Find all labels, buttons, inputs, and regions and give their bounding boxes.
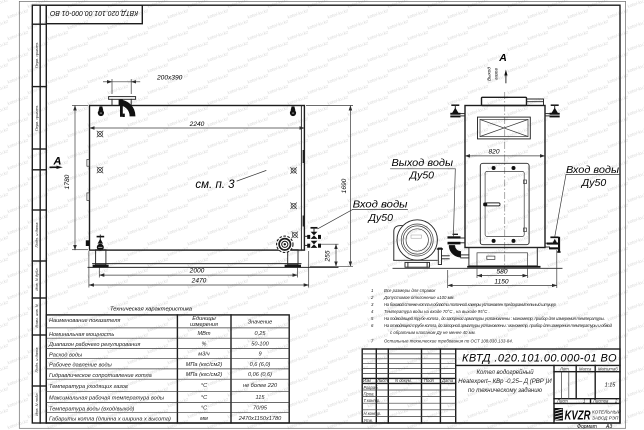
svg-text:Температура уходящих газов: Температура уходящих газов [49, 384, 128, 390]
svg-text:Пров.: Пров. [364, 391, 375, 396]
svg-text:115: 115 [256, 395, 266, 401]
svg-text:1:15: 1:15 [605, 383, 617, 389]
svg-text:200х390: 200х390 [156, 75, 183, 82]
svg-text:с обратным клапаном Ду не мен: с обратным клапаном Ду не менее 40 мм. [390, 330, 476, 335]
svg-text:Максимальная рабочая температу: Максимальная рабочая температура воды [49, 396, 164, 402]
svg-text:не более 220: не более 220 [243, 383, 278, 389]
svg-text:см. п. 3: см. п. 3 [195, 179, 235, 191]
svg-text:N докум.: N докум. [395, 378, 412, 383]
svg-text:Диапазон рабочего регулировани: Диапазон рабочего регулирования [48, 342, 140, 348]
svg-text:Взам. инв. N: Взам. инв. N [34, 304, 39, 327]
svg-text:КОТЕЛЬНЫЙ: КОТЕЛЬНЫЙ [592, 408, 622, 415]
svg-text:Все размеры для справок: Все размеры для справок [384, 288, 436, 293]
svg-text:Листов: Листов [592, 398, 609, 403]
svg-text:Температура воды на входе 70°: Температура воды на входе 70°С , на выхо… [384, 309, 490, 314]
svg-text:50-100: 50-100 [251, 341, 269, 347]
svg-text:Инв. N подл.: Инв. N подл. [34, 392, 39, 415]
svg-text:Перв. примен.: Перв. примен. [34, 42, 39, 69]
svg-text:Лист: Лист [556, 398, 568, 403]
svg-text:На подводящей трубе котла , д: На подводящей трубе котла , до запорной … [384, 316, 605, 321]
svg-text:0,25: 0,25 [255, 331, 267, 337]
svg-text:На отводящей трубе котла, до з: На отводящей трубе котла, до запорной ар… [384, 323, 613, 328]
svg-text:Формат: Формат [577, 424, 597, 430]
svg-text:Изм: Изм [363, 378, 371, 383]
svg-text:Вход воды: Вход воды [566, 164, 619, 176]
svg-text:Ду50: Ду50 [581, 177, 607, 189]
svg-text:Перв. примен.: Перв. примен. [34, 105, 39, 132]
svg-text:м3/ч: м3/ч [198, 352, 209, 358]
svg-text:Ду50: Ду50 [367, 212, 393, 224]
svg-text:Выход воды: Выход воды [392, 157, 454, 169]
svg-text:2000: 2000 [189, 267, 205, 274]
svg-text:МПа (кгс/см2): МПа (кгс/см2) [186, 372, 223, 378]
svg-text:2470: 2470 [191, 277, 207, 284]
svg-text:Допустимое отклонение ±100 мм: Допустимое отклонение ±100 мм. [383, 295, 455, 300]
svg-text:измерения: измерения [190, 322, 218, 328]
svg-text:Вход воды: Вход воды [353, 199, 408, 211]
svg-text:9: 9 [258, 352, 261, 358]
svg-text:газов: газов [494, 68, 499, 80]
svg-text:Подп. и дата: Подп. и дата [34, 347, 39, 373]
svg-text:МВт: МВт [197, 331, 210, 337]
svg-text:2240: 2240 [189, 121, 205, 128]
svg-text:На боковой стенке котла в обла: На боковой стенке котла в области топочн… [384, 302, 557, 307]
svg-text:Котел водогрейный: Котел водогрейный [476, 369, 534, 376]
svg-text:А: А [498, 52, 507, 64]
svg-text:Лит.: Лит. [559, 366, 570, 371]
svg-text:255: 255 [325, 250, 332, 262]
svg-text:580: 580 [496, 269, 507, 276]
svg-text:°С: °С [201, 395, 208, 401]
svg-text:Номинальная мощность: Номинальная мощность [49, 332, 114, 338]
svg-text:Гидравлическое сопротивление к: Гидравлическое сопротивление котла [49, 373, 152, 379]
svg-text:Н.контр.: Н.контр. [364, 411, 382, 416]
svg-text:Т.контр.: Т.контр. [364, 398, 381, 403]
svg-text:Лист: Лист [376, 378, 388, 383]
svg-text:Техническая характеристика: Техническая характеристика [110, 307, 193, 313]
svg-text:Расход воды: Расход воды [49, 352, 82, 358]
svg-text:%: % [202, 341, 207, 347]
svg-text:1690: 1690 [341, 178, 348, 193]
svg-text:1150: 1150 [494, 278, 509, 285]
svg-text:Масса: Масса [579, 366, 592, 371]
svg-text:КВТД.020.101.00.000-01 ВО: КВТД.020.101.00.000-01 ВО [50, 9, 138, 18]
svg-text:Инв. N дубл.: Инв. N дубл. [34, 267, 39, 290]
svg-text:МПа (кгс/см2): МПа (кгс/см2) [186, 362, 223, 368]
svg-text:1: 1 [583, 398, 585, 403]
svg-text:KVZR: KVZR [565, 408, 591, 423]
svg-text:Наименование показателя: Наименование показателя [49, 318, 120, 324]
svg-text:КВТД .020.101.00.000-01 ВО: КВТД .020.101.00.000-01 ВО [462, 353, 617, 365]
svg-text:Рабочее давление воды: Рабочее давление воды [49, 363, 112, 369]
svg-text:ЗАВОД РЭП: ЗАВОД РЭП [592, 416, 619, 421]
svg-text:70/95: 70/95 [253, 406, 268, 412]
svg-text:Утв.: Утв. [364, 418, 374, 423]
svg-text:Ду50: Ду50 [409, 170, 435, 182]
svg-text:А3: А3 [605, 424, 612, 430]
svg-text:820: 820 [488, 149, 499, 156]
svg-text:1780: 1780 [64, 174, 71, 189]
svg-text:°С: °С [201, 383, 208, 389]
svg-text:Температура воды (вход/выход): Температура воды (вход/выход) [49, 406, 135, 412]
svg-text:Остальные технические требован: Остальные технические требования по ОСТ … [384, 339, 513, 344]
svg-text:Подп. и дата: Подп. и дата [34, 222, 39, 248]
svg-text:Подп: Подп [424, 378, 435, 383]
svg-text:Heatexpert– КВр -0,25– Д (РВР: Heatexpert– КВр -0,25– Д (РВР )И [458, 379, 552, 385]
svg-text:А: А [53, 156, 62, 168]
svg-text:Выход: Выход [487, 67, 492, 81]
svg-text:мм: мм [200, 416, 208, 422]
svg-text:2470х1150х1780: 2470х1150х1780 [238, 416, 282, 422]
svg-text:0,06 (0,6): 0,06 (0,6) [248, 372, 272, 378]
svg-text:0,6 (6,0): 0,6 (6,0) [250, 362, 271, 368]
svg-text:Значение: Значение [248, 320, 273, 326]
svg-text:Дата: Дата [441, 378, 454, 383]
svg-text:Масштаб: Масштаб [598, 366, 618, 371]
svg-text:Габариты котла (длинна х ширин: Габариты котла (длинна х ширина х высота… [49, 417, 171, 423]
svg-text:по техническому заданию: по техническому заданию [468, 388, 543, 394]
svg-text:Разраб.: Разраб. [364, 385, 379, 390]
svg-text:°С: °С [201, 406, 208, 412]
